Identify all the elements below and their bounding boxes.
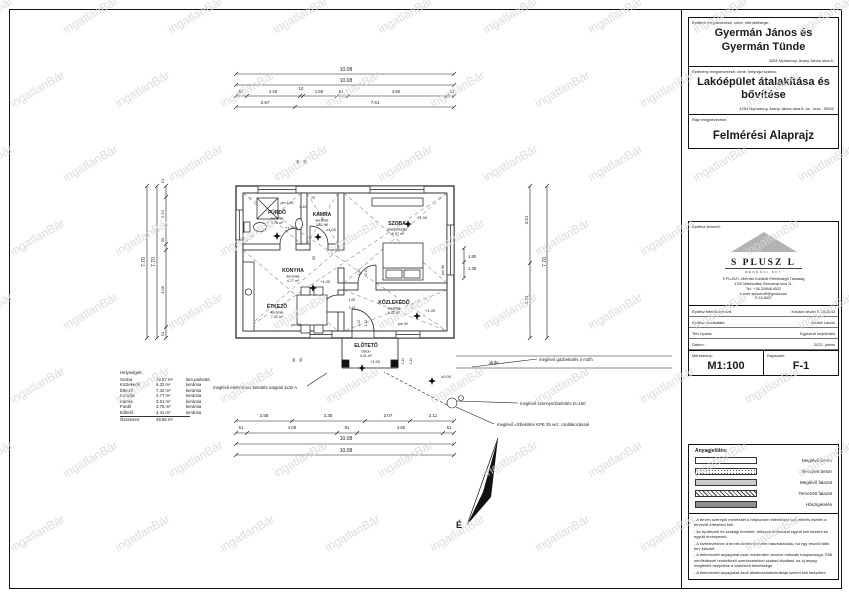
chair-icon	[301, 325, 310, 333]
plan-dim-text: 7.70	[141, 257, 147, 267]
designer-label: Építész tervező:	[689, 222, 838, 229]
plan-dim-text: 10.08	[340, 78, 353, 84]
material-label: Meglévő falazat	[800, 480, 832, 485]
plan-dim-text: 91	[345, 425, 350, 430]
plan-dim-text: 4.09	[288, 425, 297, 430]
designer-row-label: Dátum:	[692, 342, 705, 347]
level-mark-icon	[314, 233, 322, 241]
toilet-tank-icon	[244, 222, 250, 232]
plan-dim-text: pm 90	[441, 265, 445, 275]
room-schedule-cell: 4.41 m²	[156, 410, 186, 416]
room-schedule-title: Helyiségek:	[120, 370, 250, 376]
note-line: - A betervezett anyagokat azok alkalmazá…	[694, 570, 833, 575]
room-floor: kerámia	[271, 311, 284, 315]
plan-dim-text: 1.00	[349, 298, 356, 302]
plan-dim-text: 3.31	[524, 295, 529, 304]
company-info-line: É-15-5637	[689, 296, 838, 301]
plan-dim-text: 2.07	[384, 413, 393, 418]
designer-row-label: Építész munkatárs:	[692, 320, 725, 325]
room-area: 3.61 m²	[316, 223, 329, 227]
designer-row-value: Kovács István É-15-0543	[792, 309, 835, 314]
room-name: KÖZLEKEDŐ	[378, 299, 410, 306]
plan-dim-text: 2.10	[364, 320, 368, 327]
plan-dim-text: pm 90	[398, 322, 408, 326]
plan-dim-text: 1.00	[357, 320, 361, 327]
scale-value: M1:100	[692, 358, 760, 372]
client-address: 4254 Nyíradony, Arany János utca 6.	[689, 57, 838, 65]
annotation-water: meglévő vízbekötés KPE 25 vez. csatlakoz…	[497, 422, 589, 427]
company-info: S PLUSZ L Mérnöki Korlátolt Felelősségű …	[689, 277, 838, 301]
plan-dim-text: 3.35	[324, 413, 333, 418]
plan-dim-text: 51	[450, 89, 455, 94]
note-line: - Az építészeti és szakági terveket, műs…	[694, 529, 833, 540]
project-label: Építmény megnevezése, címe, helyrajzi sz…	[689, 67, 838, 74]
annotation-sewer: meglévő szennyvízbekötés D=160	[520, 401, 586, 406]
materials-legend: Anyagjelölés: Meglévő betonTervezett bet…	[688, 444, 839, 580]
plan-dim-text: 2.40	[269, 89, 278, 94]
level-mark-icon	[358, 364, 366, 372]
project-name: Lakóépület átalakítása és bővítése	[689, 74, 838, 106]
material-swatch-stipple	[695, 468, 757, 475]
floor-plan: 10.0810.08512.40101.55514.50512.677.612.…	[0, 0, 683, 600]
plan-dim-text: ±1.00	[326, 227, 337, 232]
title-block-info: Építtető megnevezése, címe, elérhetősége…	[688, 17, 839, 149]
chair-icon	[314, 325, 323, 333]
plan-dim-text: 10.08	[340, 436, 353, 442]
logo-name: S PLUSZ L	[725, 257, 802, 269]
gas-leader	[472, 359, 537, 367]
room-floor: kerámia	[388, 307, 401, 311]
plan-dim-text: 90	[296, 160, 300, 164]
material-swatch-empty	[695, 457, 757, 464]
designer-row: Építész felelős tervező:Kovács István É-…	[689, 306, 838, 317]
dimension-chain	[234, 431, 456, 435]
note-line: - A kivitelezéshez a tervek kiviteli ter…	[694, 541, 833, 552]
room-floor: kerámia	[316, 219, 329, 223]
plan-text-layer: 10.0810.08512.40101.55514.50512.677.612.…	[141, 67, 593, 530]
wardrobe-icon	[372, 198, 423, 206]
label-sidewalk: járda	[488, 360, 499, 365]
plan-dim-text: 51	[160, 178, 165, 183]
plan-dim-text: 2.67	[261, 100, 270, 105]
client-name: Gyermán János és Gyermán Tünde	[689, 25, 838, 57]
material-label: Tervezett beton	[801, 469, 832, 474]
designer-row-label: Terv típusa:	[692, 331, 712, 336]
plan-dim-text: 75	[311, 196, 315, 200]
plan-dim-text: 1.80	[468, 254, 477, 259]
room-area: 4.77 m²	[287, 279, 300, 283]
plan-dim-text: 7.61	[371, 100, 380, 105]
plan-dim-text: +1.00	[370, 359, 381, 364]
room-area: 3.75 m²	[271, 221, 284, 225]
material-row: Tervezett beton	[689, 466, 838, 477]
dimension-chain	[234, 419, 456, 423]
room-name: KONYHA	[282, 268, 304, 274]
company-logo: S PLUSZ L MÉRNÖKI KFT	[689, 232, 838, 274]
dimension-chain	[234, 94, 456, 98]
drawing-number-cell: Rajzszám: F-1	[763, 351, 838, 375]
plan-dim-text: 1.20	[401, 358, 405, 365]
logo-roof-icon	[731, 232, 797, 252]
designer-row: Terv típusa:Egyszerű bejelentés	[689, 328, 838, 339]
title-block: Építtető megnevezése, címe, elérhetősége…	[681, 10, 844, 589]
plan-dim-text: 51	[239, 89, 244, 94]
room-schedule-rows: Szoba19.57 m²lam.parkettaKözlekedő6.32 m…	[120, 377, 250, 416]
room-floor: kerámia	[287, 275, 300, 279]
designer-row-value: Egyszerű bejelentés	[800, 331, 835, 336]
plan-dim-text: 2.11	[429, 413, 438, 418]
material-swatch-solid-light	[695, 479, 757, 486]
room-name: FÜRDŐ	[268, 209, 286, 216]
material-row: Hőszigetelés	[689, 499, 838, 510]
level-mark-icon	[413, 312, 421, 320]
scale-cell: Méretarány: M1:100	[689, 351, 763, 375]
chair-icon	[301, 287, 310, 295]
annotation-gas: meglévő gázbekötés 4 m3/h	[539, 357, 593, 362]
plan-dim-text: 10.08	[340, 448, 353, 454]
material-row: Tervezett falazat	[689, 488, 838, 499]
room-schedule-total-value: 49.85 m²	[156, 417, 173, 423]
designer-row: Építész munkatárs:Szutöli László	[689, 317, 838, 328]
room-floor: beton	[362, 350, 371, 354]
room-area: 4.41 m²	[360, 354, 373, 358]
water-leader	[456, 407, 494, 424]
dimension-chain	[234, 105, 456, 109]
sink-icon	[245, 289, 251, 295]
material-row: Meglévő beton	[689, 455, 838, 466]
level-mark-icon	[428, 377, 436, 385]
plan-dim-text: 86	[292, 358, 296, 362]
note-line: - A terven szereplő méreteket a helyszín…	[694, 517, 833, 528]
plan-dim-text: pm 95	[291, 323, 301, 327]
plan-dim-text: 51	[160, 331, 165, 336]
plan-dim-text: 2.10	[349, 306, 356, 310]
drawing-sheet: 10.0810.08512.40101.55514.50512.677.612.…	[0, 0, 849, 600]
plan-dim-text: 4.50	[397, 425, 406, 430]
room-area: 6.32 m²	[388, 311, 401, 315]
electric-leader	[307, 373, 327, 386]
plan-dim-text: 4.08	[160, 285, 165, 294]
dimension-chain	[234, 442, 456, 446]
material-swatch-solid-dark	[695, 501, 757, 508]
room-floor: lam.parketta	[387, 228, 407, 232]
washbasin-icon	[296, 219, 303, 230]
designer-row-value: Szutöli László	[811, 320, 835, 325]
plan-dim-text: 7.70	[151, 257, 157, 267]
room-floor: kerámia	[271, 217, 284, 221]
room-schedule: Helyiségek: Szoba19.57 m²lam.parkettaKöz…	[120, 370, 250, 423]
plan-dim-text: 1.35	[468, 266, 477, 271]
drawing-name: Felmérési Alaprajz	[689, 122, 838, 148]
plan-dim-text: 30	[160, 237, 165, 242]
plan-dim-text: 2.55	[260, 413, 269, 418]
plan-dim-text: 85	[312, 256, 316, 260]
plan-dim-text: 2.10	[364, 269, 368, 276]
plan-dim-text: 96	[299, 358, 303, 362]
plan-dim-text: +1.00	[320, 279, 331, 284]
plan-dim-text: 10	[299, 86, 304, 91]
drawing-number-value: F-1	[767, 358, 835, 372]
room-area: 7.42 m²	[271, 315, 284, 319]
plan-dim-text: 51	[339, 89, 344, 94]
designer-row: Dátum:2022. június	[689, 339, 838, 350]
dimension-chain	[528, 184, 532, 340]
plan-dim-text: 2.40	[300, 205, 307, 209]
water-connection-icon	[459, 396, 464, 401]
room-schedule-total: Összesen: 49.85 m²	[120, 416, 190, 423]
sewer-leader	[457, 401, 518, 403]
designer-rows: Építész felelős tervező:Kovács István É-…	[689, 305, 838, 350]
kitchen-counter-icon	[243, 262, 254, 331]
material-label: Tervezett falazat	[799, 491, 832, 496]
project-address: 4254 Nyíradony, Arany János utca 6. sz.,…	[689, 105, 838, 113]
dimension-chain	[462, 246, 466, 280]
room-schedule-cell: Előtető	[120, 410, 156, 416]
client-label: Építtető megnevezése, címe, elérhetősége…	[689, 18, 838, 25]
room-name: KAMRA	[313, 212, 332, 218]
materials-title: Anyagjelölés:	[689, 445, 838, 455]
dining-table-icon	[297, 295, 327, 325]
plan-dim-text: 1.55	[315, 89, 324, 94]
dimension-chain	[164, 184, 168, 340]
plan-dim-text: 7.70	[542, 257, 548, 267]
room-name: ELŐTETŐ	[354, 342, 378, 349]
plan-dim-text: 51	[239, 425, 244, 430]
toilet-icon	[254, 223, 267, 232]
plan-dim-text: 2.13	[160, 209, 165, 218]
plan-dim-text: 4.50	[392, 89, 401, 94]
plan-dim-text: 51	[447, 425, 452, 430]
material-label: Hőszigetelés	[806, 502, 832, 507]
material-swatch-hatch	[695, 490, 757, 497]
north-label: É	[456, 520, 462, 530]
room-name: ÉTKEZŐ	[267, 302, 287, 310]
plan-dim-text: 3.51	[524, 215, 529, 224]
sewer-connection-icon	[447, 398, 457, 408]
plan-dim-text: 10.08	[340, 67, 353, 73]
plan-dim-text: 60	[303, 160, 307, 164]
room-name: SZOBA	[388, 221, 406, 227]
north-arrow	[467, 438, 498, 525]
drawing-label: Rajz megnevezése:	[689, 115, 838, 122]
logo-subtitle: MÉRNÖKI KFT	[689, 270, 838, 274]
plan-dim-text: +1.00	[285, 225, 296, 230]
note-line: - A betervezett anyagokat csak mindenben…	[694, 552, 833, 568]
plan-dim-text: pm 1.90	[281, 201, 294, 205]
materials-rows: Meglévő betonTervezett betonMeglévő fala…	[689, 455, 838, 510]
material-row: Meglévő falazat	[689, 477, 838, 488]
designer-row-value: 2022. június	[814, 342, 835, 347]
room-schedule-cell: kerámia	[186, 410, 226, 416]
plan-dim-text: ±0.00	[441, 374, 452, 379]
room-schedule-total-label: Összesen:	[120, 417, 156, 423]
room-schedule-row: Előtető4.41 m²kerámia	[120, 410, 250, 416]
room-area: 19.57 m²	[390, 232, 405, 236]
plan-dim-text: 1.00	[357, 269, 361, 276]
designer-row-label: Építész felelős tervező:	[692, 309, 732, 314]
plan-dim-text: +1.00	[417, 215, 428, 220]
level-mark-icon	[273, 232, 281, 240]
general-notes: - A terven szereplő méreteket a helyszín…	[689, 513, 838, 579]
title-block-designer: Építész tervező: S PLUSZ L MÉRNÖKI KFT S…	[688, 221, 839, 376]
plan-dim-text: +1.00	[425, 308, 436, 313]
material-label: Meglévő beton	[802, 458, 832, 463]
scale-number-row: Méretarány: M1:100 Rajzszám: F-1	[689, 350, 838, 375]
plan-dim-text: 1.20	[409, 358, 413, 365]
